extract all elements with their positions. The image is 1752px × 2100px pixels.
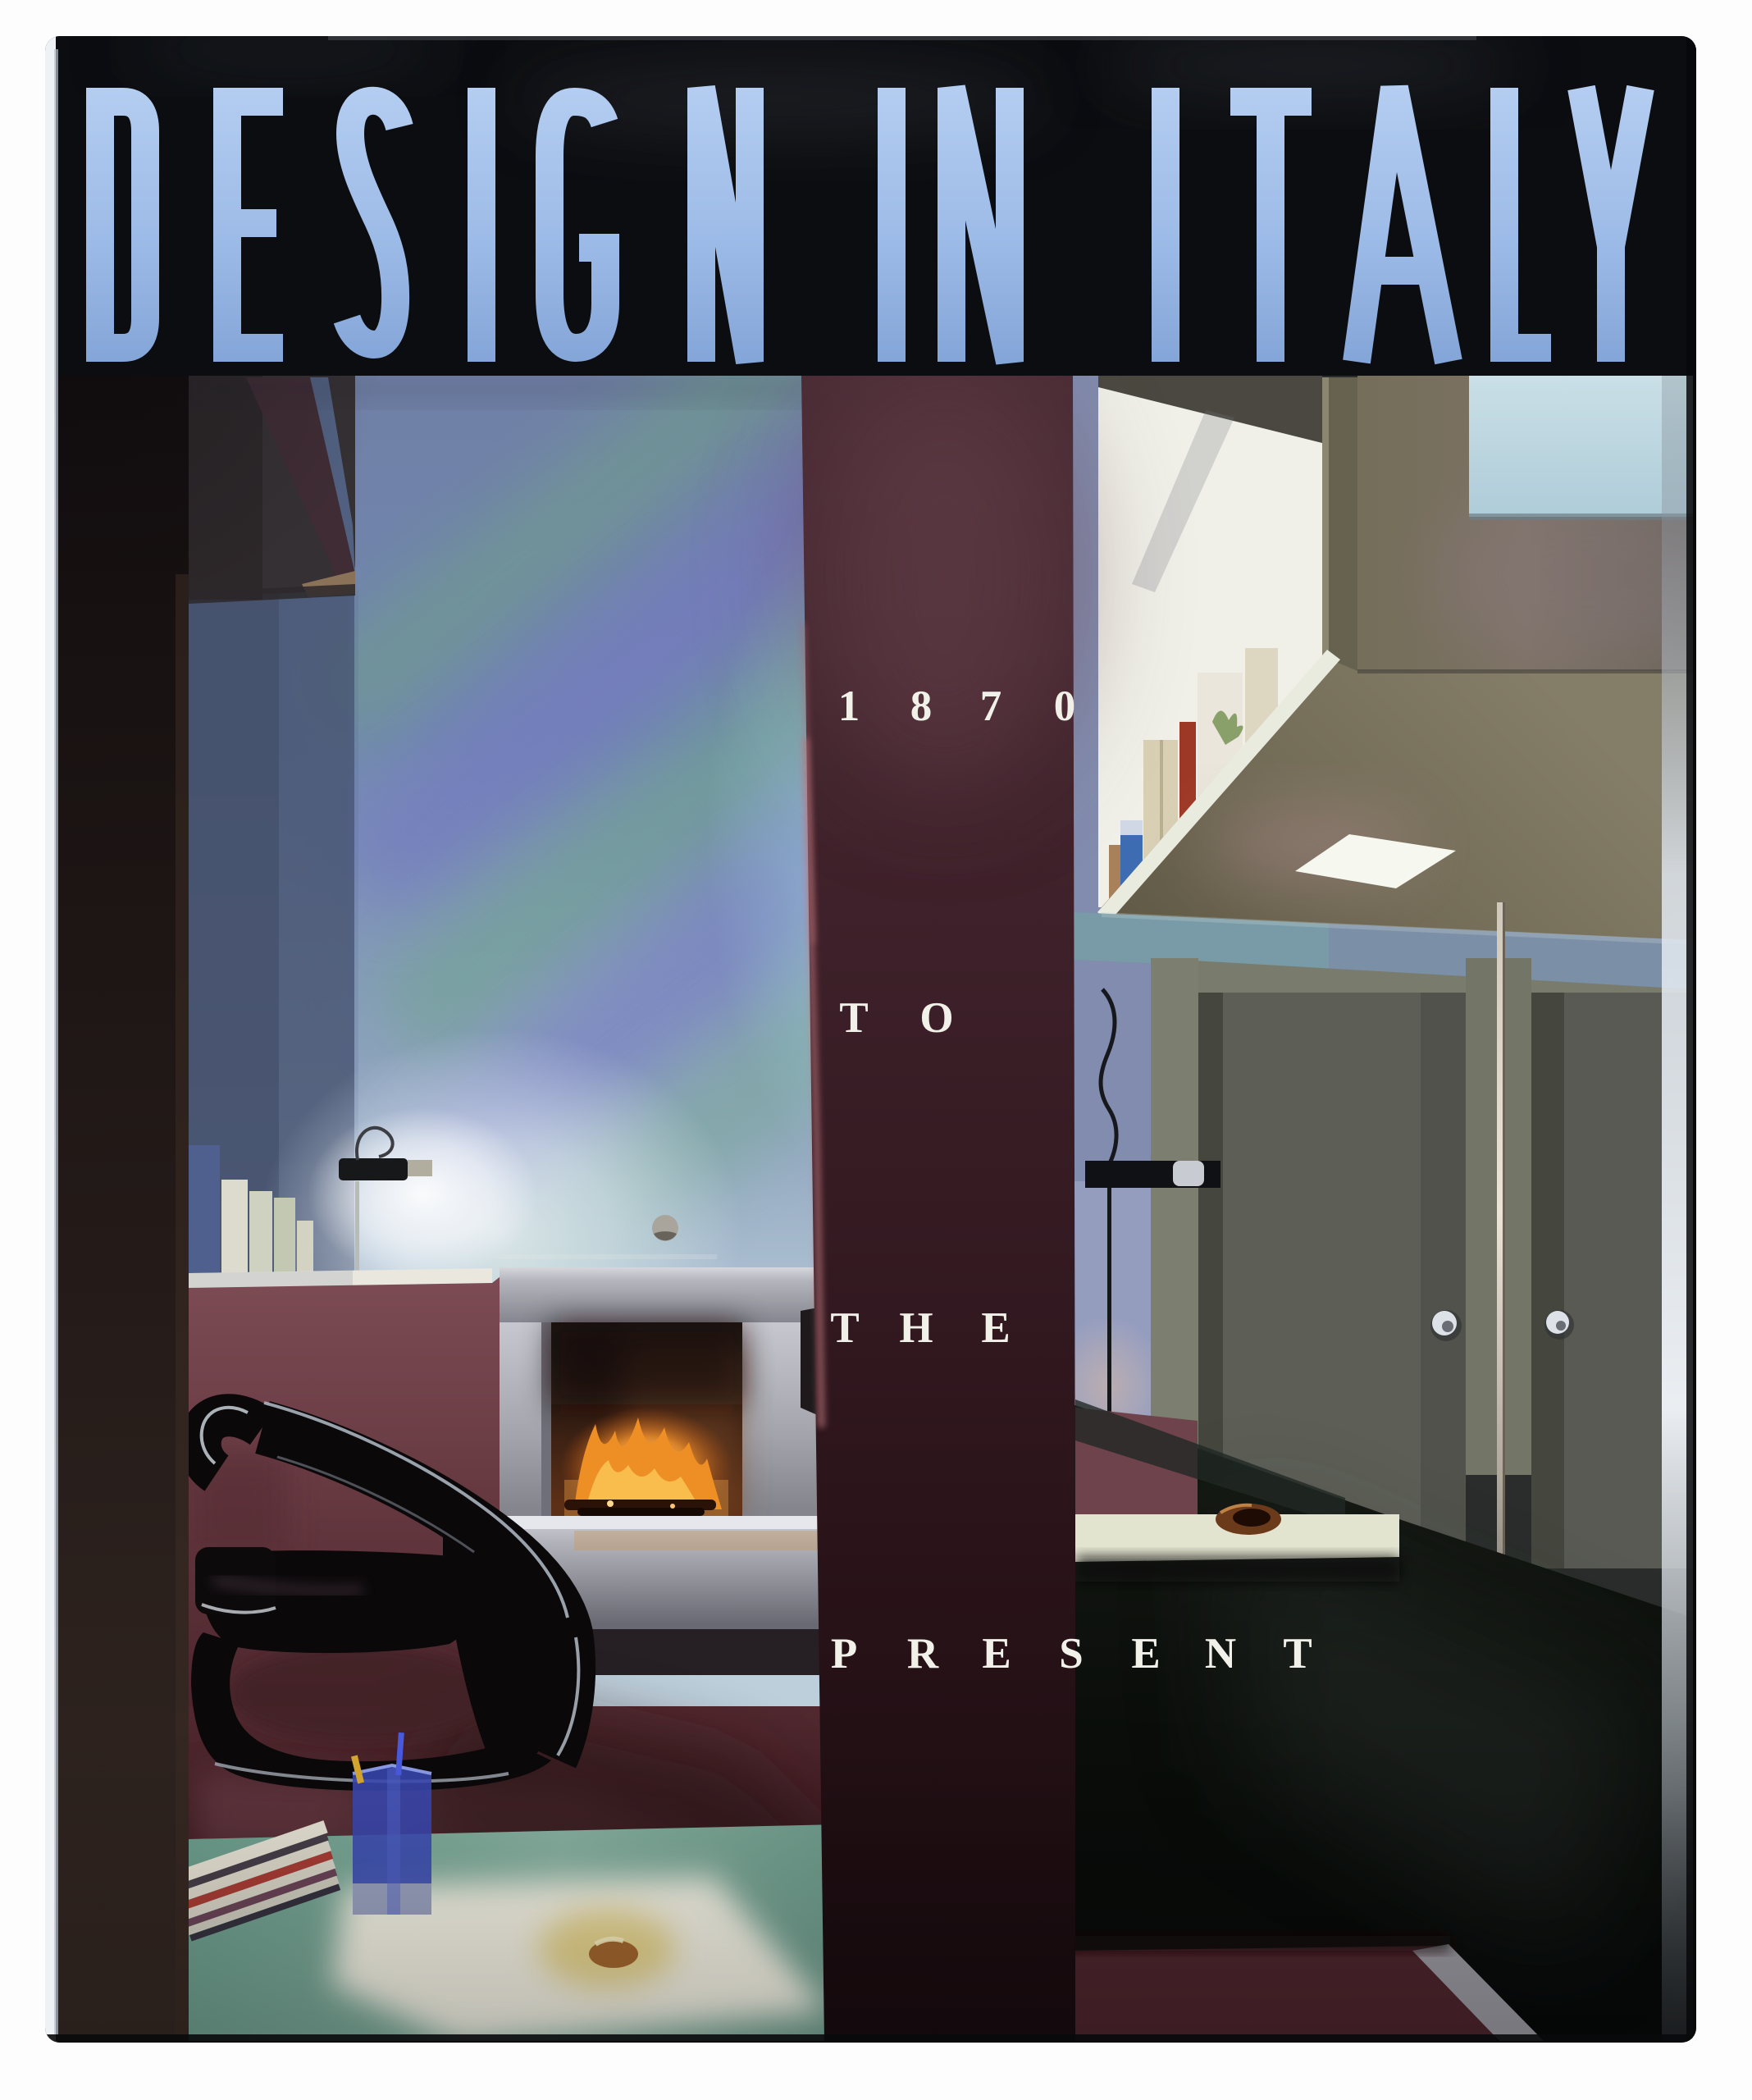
svg-text:T: T: [1283, 1630, 1312, 1678]
svg-text:P: P: [831, 1630, 857, 1678]
svg-text:1: 1: [838, 682, 860, 730]
svg-text:T: T: [839, 994, 868, 1042]
svg-text:O: O: [919, 994, 953, 1042]
svg-text:E: E: [981, 1304, 1010, 1352]
svg-text:T: T: [830, 1304, 859, 1352]
svg-text:R: R: [907, 1630, 939, 1678]
svg-text:S: S: [1059, 1630, 1083, 1678]
svg-text:E: E: [1131, 1630, 1160, 1678]
svg-text:0: 0: [1054, 682, 1076, 730]
svg-text:8: 8: [910, 682, 933, 730]
svg-text:H: H: [899, 1304, 933, 1352]
svg-text:E: E: [982, 1630, 1011, 1678]
svg-text:N: N: [1205, 1630, 1236, 1678]
svg-text:7: 7: [980, 682, 1002, 730]
